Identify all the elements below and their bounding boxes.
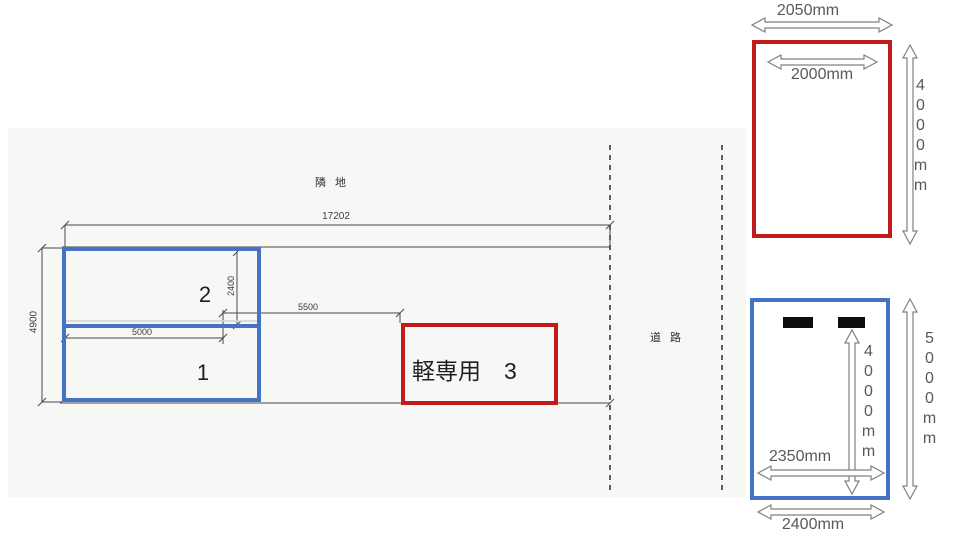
road-label: 道 路 <box>650 329 684 345</box>
dim-text-5000: 5000 <box>132 327 152 337</box>
dim-text-2400: 2400 <box>226 276 236 296</box>
dim-text-5500: 5500 <box>298 302 318 312</box>
space-3-label: 軽専用 3 <box>412 352 517 386</box>
red-detail-inner-width-text: 2000mm <box>791 66 853 84</box>
arrow-2050mm <box>752 18 892 32</box>
arrow-5000mm <box>903 299 917 499</box>
blue-detail-outer-depth-text: 5000mm <box>921 330 937 450</box>
blue-detail-inner-width-text: 2350mm <box>769 448 831 466</box>
parking-plan-page: 隣 地 道 路 17202 4900 5000 2400 5500 2 1 軽専… <box>0 0 960 540</box>
neighbor-land-label: 隣 地 <box>315 174 349 190</box>
red-detail-outer-width-text: 2050mm <box>777 2 839 20</box>
space-1-label: 1 <box>197 360 209 386</box>
blue-detail-stopper-depth-text: 4000mm <box>860 343 876 463</box>
space-2-label: 2 <box>199 282 211 308</box>
space-1-2-divider <box>62 324 261 328</box>
dim-text-4900: 4900 <box>29 311 40 333</box>
dim-text-17202: 17202 <box>322 211 350 222</box>
blue-detail-outer-width-text: 2400mm <box>782 516 844 534</box>
red-detail-depth-text: 4000mm <box>912 77 928 197</box>
